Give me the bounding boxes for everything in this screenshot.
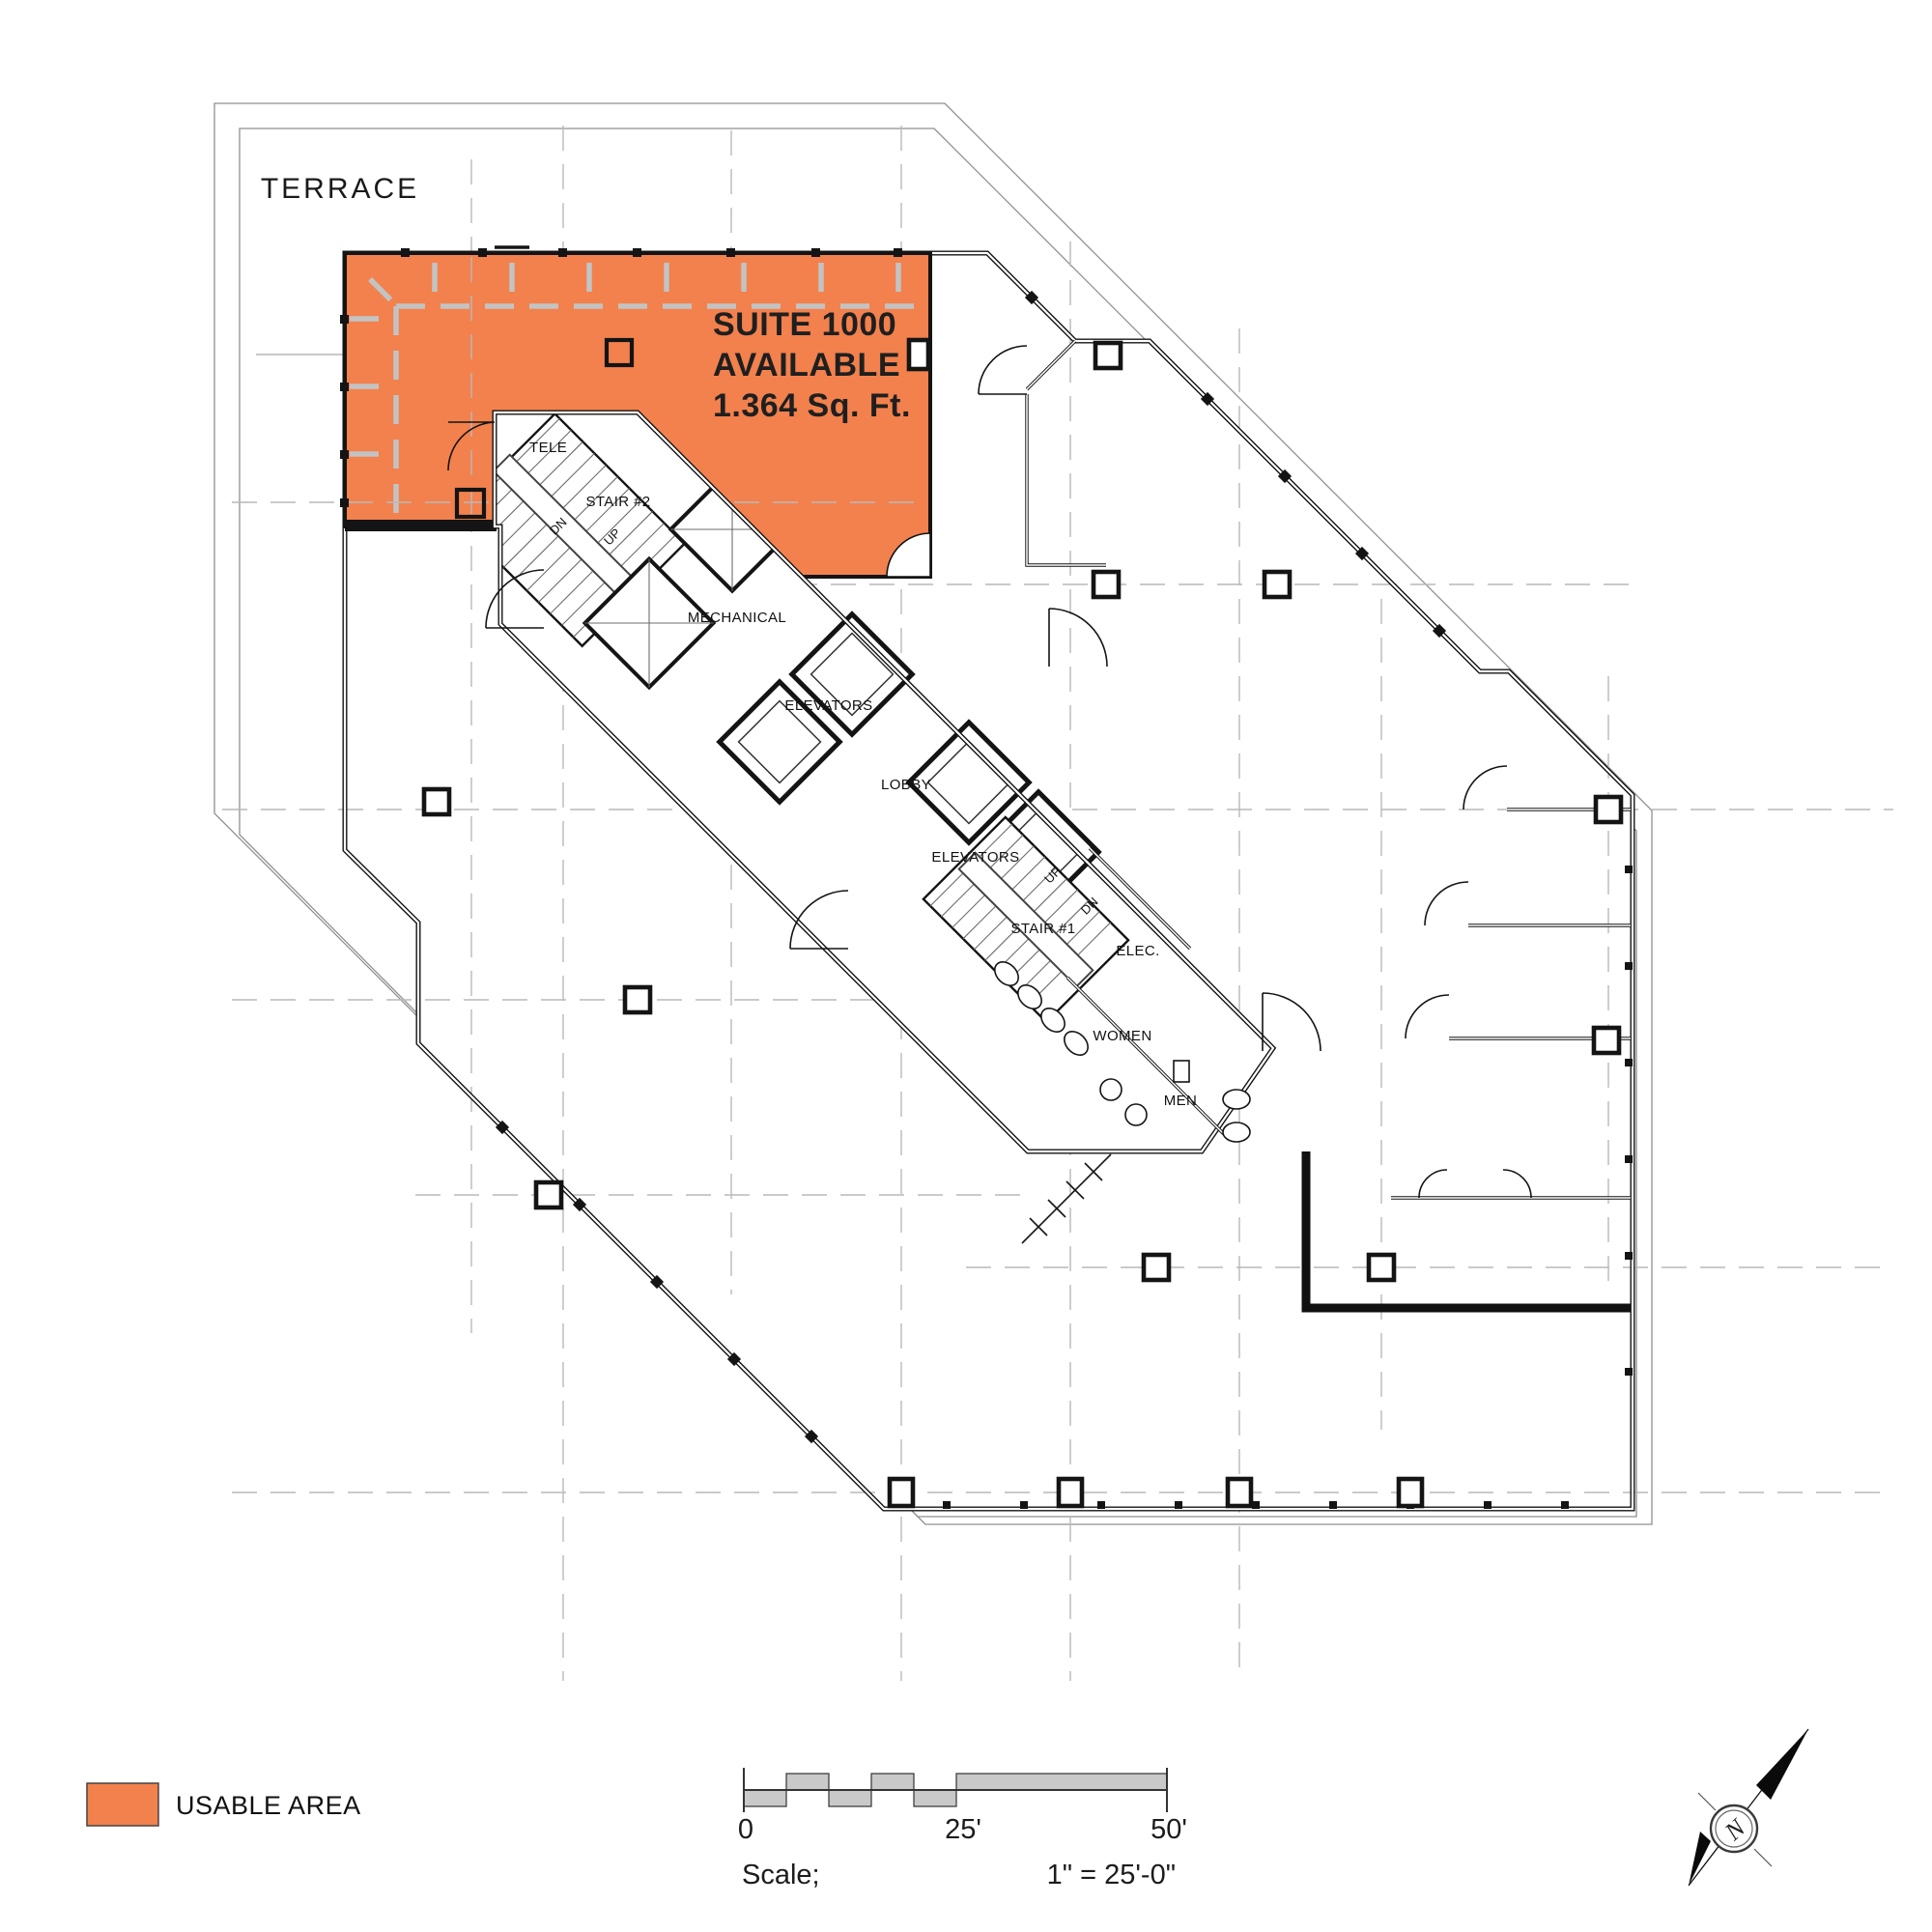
suite-area-label: 1.364 Sq. Ft.	[713, 387, 911, 424]
north-compass: N	[1689, 1729, 1808, 1886]
south-needle	[1689, 1832, 1711, 1886]
terrace-label: TERRACE	[261, 173, 419, 205]
room-label-elevators-lower: ELEVATORS	[931, 849, 1019, 866]
suite-name-label: SUITE 1000	[713, 306, 896, 343]
scale-ratio: 1" = 25'-0"	[1047, 1860, 1176, 1890]
scale-word: Scale;	[742, 1860, 820, 1890]
floor-plan-canvas: TERRACE SUITE 1000 AVAILABLE 1.364 Sq. F…	[0, 0, 1932, 1932]
legend-usable-area-label: USABLE AREA	[176, 1791, 361, 1820]
room-label-mechanical: MECHANICAL	[688, 610, 786, 626]
scale-tick-25: 25'	[945, 1814, 981, 1845]
floor-plan-page: TERRACE SUITE 1000 AVAILABLE 1.364 Sq. F…	[0, 0, 1932, 1932]
north-needle	[1756, 1729, 1808, 1800]
legend-usable-area-swatch	[87, 1783, 158, 1826]
column	[909, 340, 928, 369]
room-label-elevators-upper: ELEVATORS	[784, 697, 872, 714]
room-label-stair2: STAIR #2	[585, 494, 650, 510]
room-label-elec: ELEC.	[1116, 943, 1159, 959]
room-label-tele: TELE	[529, 440, 567, 456]
scale-bar: 0 25' 50' Scale; 1" = 25'-0"	[738, 1768, 1187, 1890]
legend: USABLE AREA	[87, 1783, 361, 1826]
room-label-lobby: LOBBY	[881, 777, 931, 793]
scale-tick-0: 0	[738, 1814, 753, 1845]
room-label-men: MEN	[1164, 1093, 1198, 1109]
room-label-stair1: STAIR #1	[1010, 921, 1075, 937]
scale-tick-50: 50'	[1151, 1814, 1187, 1845]
suite-demising-wall	[345, 520, 497, 531]
suite-status-label: AVAILABLE	[713, 347, 900, 384]
room-label-women: WOMEN	[1093, 1028, 1151, 1044]
